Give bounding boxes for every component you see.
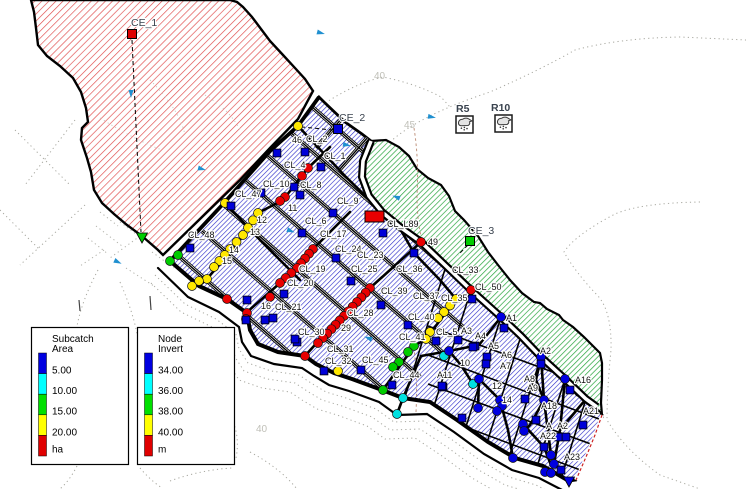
svg-text:CL_2: CL_2 (306, 134, 328, 144)
svg-text:38.00: 38.00 (158, 407, 183, 418)
svg-text:A23: A23 (564, 452, 580, 462)
svg-text:CL_23: CL_23 (357, 250, 384, 260)
svg-text:CL_9: CL_9 (337, 196, 359, 206)
svg-text:CL_20: CL_20 (287, 278, 314, 288)
svg-text:A2: A2 (557, 421, 568, 431)
svg-text:CL_25: CL_25 (351, 264, 378, 274)
svg-text:CL_41: CL_41 (399, 332, 426, 342)
svg-text:A: A (546, 421, 552, 431)
svg-text:46: 46 (292, 135, 302, 145)
svg-text:CE_1: CE_1 (131, 17, 157, 29)
svg-text:CL_35: CL_35 (441, 293, 468, 303)
svg-text:CL_30: CL_30 (298, 327, 325, 337)
svg-text:A9: A9 (527, 383, 538, 393)
svg-text:A6: A6 (501, 350, 512, 360)
svg-text:CL_28: CL_28 (347, 308, 374, 318)
svg-text:CL_19: CL_19 (299, 264, 326, 274)
svg-text:CE_3: CE_3 (468, 225, 494, 237)
svg-text:11: 11 (288, 203, 297, 213)
svg-text:CL_8: CL_8 (300, 180, 322, 190)
svg-text:40.00: 40.00 (158, 427, 183, 438)
svg-text:A2: A2 (540, 346, 551, 356)
svg-text:CL_6: CL_6 (305, 216, 327, 226)
svg-text:CL_5: CL_5 (436, 327, 458, 337)
svg-text:CL_32: CL_32 (325, 356, 352, 366)
svg-text:CL_45: CL_45 (362, 355, 389, 365)
svg-text:12: 12 (257, 215, 267, 225)
svg-text:CE_2: CE_2 (339, 112, 365, 124)
svg-text:CL_L89: CL_L89 (387, 219, 419, 229)
svg-text:20.00: 20.00 (52, 427, 77, 438)
svg-text:12: 12 (492, 381, 502, 391)
svg-text:CL_21: CL_21 (275, 302, 302, 312)
svg-text:36.00: 36.00 (158, 386, 183, 397)
svg-text:A11: A11 (437, 370, 452, 380)
svg-text:49: 49 (428, 237, 438, 247)
svg-text:CL_50: CL_50 (475, 282, 502, 292)
svg-text:CL_47: CL_47 (235, 189, 262, 199)
svg-text:16: 16 (261, 301, 271, 311)
svg-text:A5: A5 (488, 341, 499, 351)
svg-text:CL_48: CL_48 (188, 230, 215, 240)
svg-text:29: 29 (341, 323, 351, 333)
svg-text:A21: A21 (583, 406, 599, 416)
svg-text:A4: A4 (475, 331, 486, 341)
svg-text:A3: A3 (461, 326, 472, 336)
svg-text:A16: A16 (575, 375, 591, 385)
svg-text:CL_1: CL_1 (324, 151, 346, 161)
svg-text:A7: A7 (500, 361, 511, 371)
svg-text:CL_37: CL_37 (413, 291, 440, 301)
svg-text:A1: A1 (506, 313, 517, 323)
svg-text:R5: R5 (456, 103, 470, 115)
svg-text:CL_10: CL_10 (263, 179, 290, 189)
svg-text:ha: ha (52, 445, 64, 456)
svg-text:10: 10 (460, 358, 470, 368)
svg-text:CL_17: CL_17 (320, 229, 347, 239)
svg-text:R10: R10 (491, 102, 510, 114)
svg-text:Invert: Invert (158, 344, 183, 355)
svg-text:CL_40: CL_40 (408, 312, 435, 322)
svg-text:A18: A18 (541, 401, 557, 411)
svg-text:CL_31: CL_31 (327, 344, 354, 354)
svg-text:45: 45 (404, 120, 416, 131)
svg-text:Area: Area (52, 344, 74, 355)
svg-text:40: 40 (374, 71, 386, 82)
svg-text:13: 13 (250, 227, 260, 237)
svg-text:CL_33: CL_33 (452, 265, 479, 275)
svg-text:40: 40 (256, 424, 268, 435)
svg-text:5.00: 5.00 (52, 366, 72, 377)
svg-text:CL_44: CL_44 (393, 370, 420, 380)
svg-text:14: 14 (502, 395, 512, 405)
svg-text:m: m (158, 445, 166, 456)
svg-text:CL_39: CL_39 (381, 286, 408, 296)
svg-text:10.00: 10.00 (52, 386, 77, 397)
svg-text:14: 14 (229, 245, 239, 255)
svg-text:15: 15 (222, 256, 232, 266)
svg-text:A22: A22 (540, 431, 556, 441)
svg-text:CL_36: CL_36 (396, 264, 423, 274)
svg-text:34.00: 34.00 (158, 366, 183, 377)
svg-text:15.00: 15.00 (52, 407, 77, 418)
svg-text:CL_4: CL_4 (284, 160, 306, 170)
